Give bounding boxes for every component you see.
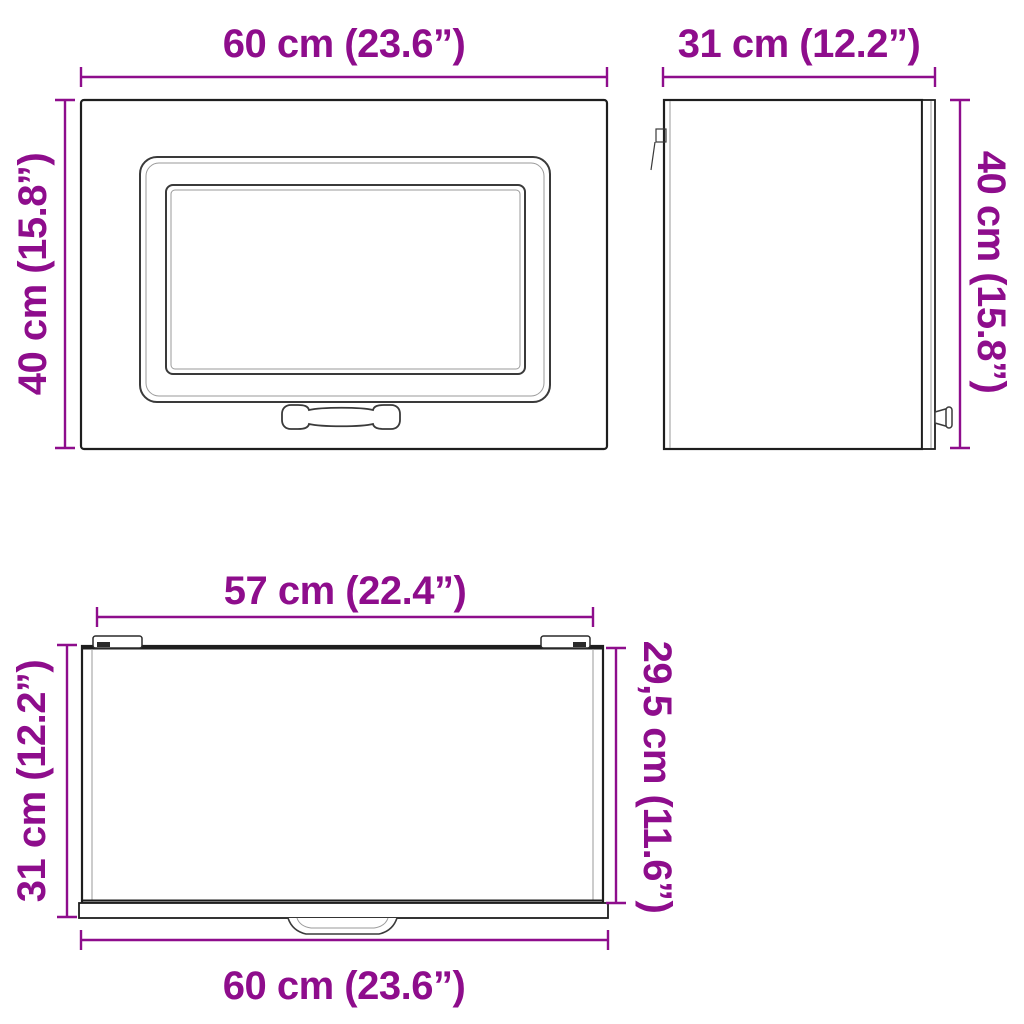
top-view-drawing [79, 636, 608, 934]
top-inner-width-label: 57 cm (22.4”) [224, 571, 467, 611]
side-handle-bar [946, 407, 952, 428]
front-height-dimension-line [55, 100, 75, 448]
cabinet-line-drawing [0, 0, 1024, 1024]
side-depth-label: 31 cm (12.2”) [678, 24, 921, 64]
top-left-bracket-detail [97, 642, 110, 647]
top-depth-label: 31 cm (12.2”) [12, 660, 52, 903]
side-cabinet-outline [664, 100, 922, 449]
front-width-label: 60 cm (23.6”) [223, 24, 466, 64]
side-height-dimension-line [950, 100, 970, 448]
top-inner-depth-label: 29,5 cm (11.6”) [637, 641, 677, 914]
top-body-outline [82, 646, 603, 903]
front-width-dimension-line [81, 67, 607, 87]
dimension-diagram: 60 cm (23.6”) 31 cm (12.2”) 40 cm (15.8”… [0, 0, 1024, 1024]
top-depth-dimension-line [57, 645, 77, 917]
top-inner-depth-dimension-line [606, 648, 626, 903]
side-door-edge [922, 100, 935, 449]
front-handle-outline [282, 405, 400, 429]
top-door-strip [79, 903, 608, 918]
top-outer-width-label: 60 cm (23.6”) [223, 966, 466, 1006]
side-height-label: 40 cm (15.8”) [971, 151, 1011, 394]
front-cabinet-outline [81, 100, 607, 449]
front-view-drawing [81, 100, 607, 449]
side-view-drawing [651, 100, 952, 449]
top-right-bracket-detail [573, 642, 586, 647]
front-height-label: 40 cm (15.8”) [13, 153, 53, 396]
side-wall-bracket-hook [651, 142, 655, 170]
side-depth-dimension-line [663, 67, 935, 87]
